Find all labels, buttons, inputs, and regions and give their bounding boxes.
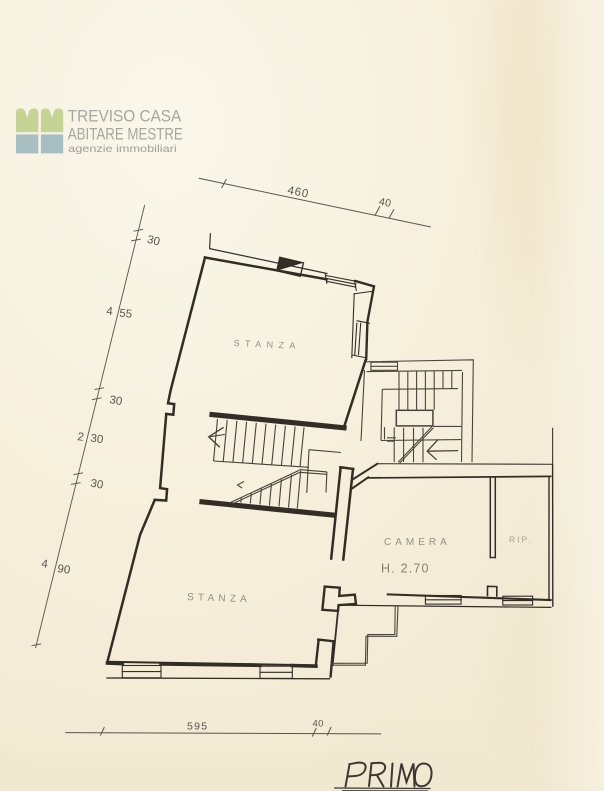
svg-text:40: 40 (313, 719, 324, 730)
svg-text:595: 595 (187, 721, 208, 733)
svg-text:30: 30 (90, 433, 104, 447)
svg-text:CAMERA: CAMERA (384, 537, 451, 548)
svg-text:55: 55 (119, 308, 133, 321)
svg-text:40: 40 (378, 196, 392, 210)
svg-text:90: 90 (57, 563, 71, 577)
svg-text:H. 2.70: H. 2.70 (381, 562, 430, 576)
svg-text:agenzie immobiliari: agenzie immobiliari (68, 144, 177, 155)
svg-text:30: 30 (89, 478, 104, 492)
svg-text:ABITARE MESTRE: ABITARE MESTRE (68, 125, 183, 143)
svg-text:RIP.: RIP. (509, 535, 532, 545)
svg-text:STANZA: STANZA (187, 592, 251, 605)
svg-text:30: 30 (108, 394, 123, 408)
svg-text:TREVISO CASA: TREVISO CASA (68, 108, 182, 126)
